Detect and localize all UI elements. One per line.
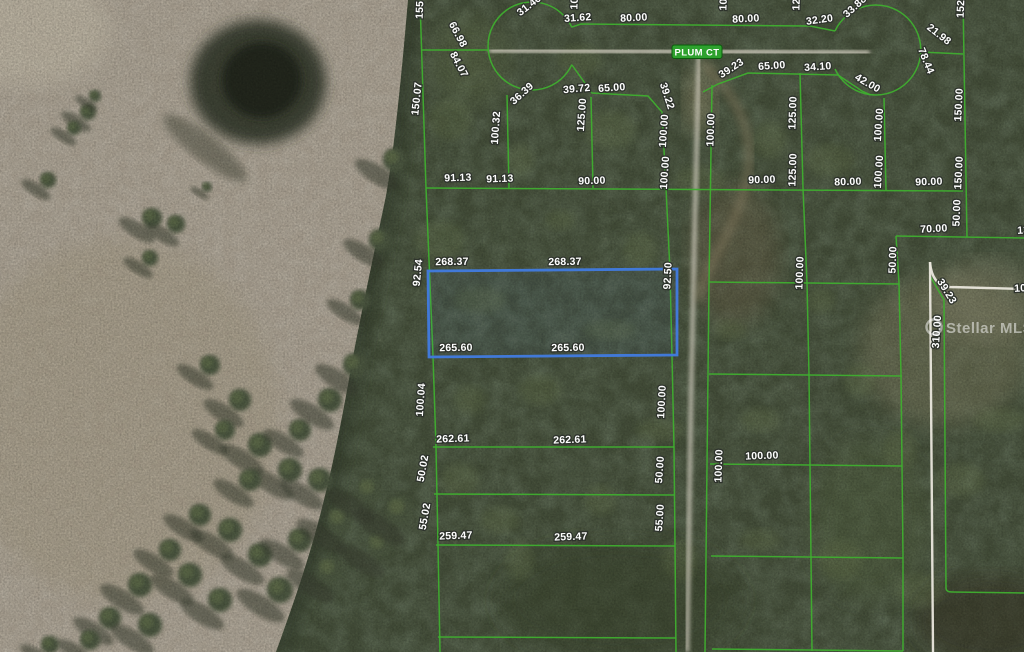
aerial-parcel-map[interactable]: 155100.00100.00125.00152150.0792.54100.0…	[0, 0, 1024, 652]
dimension-label: 100.32	[489, 111, 503, 145]
dimension-label: 265.60	[551, 342, 585, 355]
parcel-boundary-line	[434, 494, 674, 495]
dimension-label: 100.04	[414, 383, 428, 417]
dimension-label: 125.00	[786, 153, 799, 187]
dimension-label: 91.13	[486, 173, 514, 186]
dimension-label: 155	[414, 1, 427, 20]
dimension-label: 100.00	[657, 114, 671, 148]
parcel-boundary-line	[436, 545, 675, 546]
dimension-label: 90.00	[578, 175, 606, 188]
dimension-label: 80.00	[732, 12, 760, 25]
dimension-label: 92.50	[661, 262, 674, 290]
dimension-label: 65.00	[598, 81, 626, 95]
dimension-label: 31.62	[564, 11, 592, 25]
dimension-label: 262.61	[553, 433, 587, 446]
dimension-label: 65.00	[758, 59, 786, 73]
dimension-label: 265.60	[439, 342, 473, 355]
dimension-label: 152	[955, 0, 968, 18]
dimension-label: 125.00	[575, 98, 589, 132]
dimension-label: 100.00	[655, 385, 669, 419]
dimension-label: 34.10	[804, 60, 832, 74]
parcel-boundary-line	[438, 637, 676, 638]
dimension-label: 125.00	[790, 0, 803, 11]
dimension-label: 105.00	[1014, 281, 1024, 295]
dimension-label: 100.00	[872, 108, 886, 142]
dimension-label: 80.00	[834, 176, 862, 189]
dimension-label: 100.00	[658, 156, 672, 190]
dimension-label: 100.00	[704, 113, 717, 147]
street-label-badge: PLUM CT	[672, 45, 722, 59]
dimension-label: 100.00	[872, 155, 886, 189]
dimension-label: 80.00	[620, 11, 648, 24]
dimension-label: 100.00	[712, 449, 725, 483]
dimension-label: 70.00	[920, 222, 948, 235]
dimension-label: 50.00	[887, 246, 900, 274]
dimension-label: 100.00	[745, 449, 779, 462]
dimension-label: 39.72	[563, 82, 591, 96]
dimension-label: 90.00	[915, 176, 943, 189]
dimension-label: 50.00	[653, 456, 667, 484]
dimension-label: 90.00	[748, 174, 776, 187]
dimension-label: 259.47	[554, 530, 588, 543]
dimension-label: 100.00	[793, 256, 806, 290]
dimension-label: 150.00	[952, 156, 966, 190]
street-label: PLUM CT	[674, 48, 719, 59]
dimension-label: 125.00	[786, 96, 799, 130]
dimension-label: 100.00	[717, 0, 730, 11]
dimension-label: 100.00	[568, 0, 581, 10]
dimension-label: 262.61	[436, 432, 470, 445]
dimension-label: 259.47	[439, 529, 473, 542]
dimension-label: 268.37	[435, 256, 469, 269]
dimension-label: 50.00	[951, 199, 964, 227]
dimension-label: 268.37	[548, 256, 582, 269]
dimension-label: 55.00	[653, 504, 667, 532]
watermark-text: Stellar MLS	[946, 320, 1024, 337]
dimension-label: 91.13	[444, 172, 472, 185]
dimension-label: 130.00	[1017, 223, 1024, 237]
dimension-label: 150.00	[952, 88, 966, 122]
